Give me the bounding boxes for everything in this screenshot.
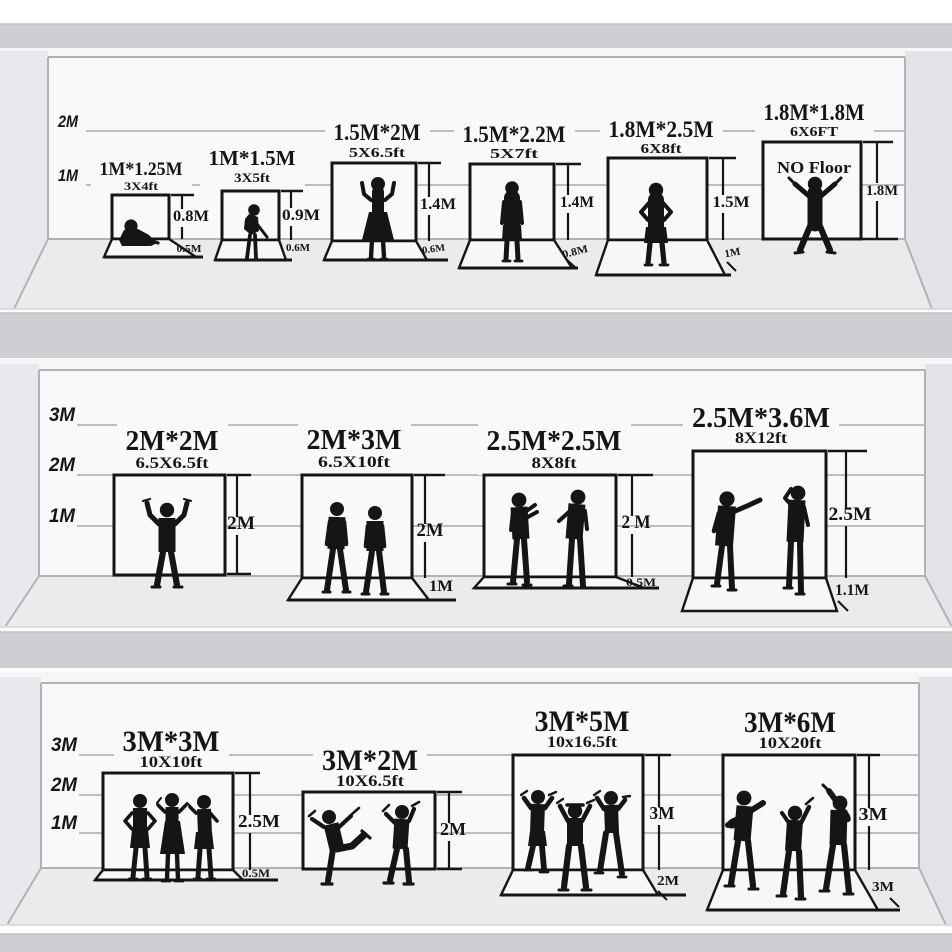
svg-text:3M: 3M (859, 804, 888, 824)
svg-text:1M: 1M (49, 506, 76, 527)
svg-text:6.5X6.5ft: 6.5X6.5ft (136, 455, 210, 472)
svg-text:1.5M*2M: 1.5M*2M (334, 120, 421, 145)
svg-text:3X5ft: 3X5ft (234, 170, 271, 185)
svg-text:1M: 1M (429, 578, 453, 595)
svg-text:1M*1.25M: 1M*1.25M (100, 159, 183, 180)
svg-text:2M*2M: 2M*2M (126, 425, 219, 457)
svg-text:1.4M: 1.4M (560, 194, 594, 211)
svg-text:0.8M: 0.8M (173, 208, 209, 225)
svg-text:10X10ft: 10X10ft (140, 754, 204, 771)
svg-text:1.4M: 1.4M (420, 196, 456, 213)
svg-text:2 M: 2 M (622, 512, 651, 533)
svg-text:2M*3M: 2M*3M (307, 424, 402, 456)
svg-text:8X12ft: 8X12ft (735, 430, 788, 447)
svg-text:2M: 2M (227, 513, 255, 534)
svg-text:5X6.5ft: 5X6.5ft (349, 146, 405, 161)
svg-text:10X20ft: 10X20ft (759, 735, 823, 752)
svg-text:2M: 2M (48, 455, 76, 476)
svg-text:0.5M: 0.5M (242, 866, 270, 880)
svg-text:2M: 2M (440, 819, 466, 839)
svg-text:6.5X10ft: 6.5X10ft (318, 454, 391, 471)
svg-text:10x16.5ft: 10x16.5ft (547, 734, 618, 751)
svg-text:1.8M*2.5M: 1.8M*2.5M (609, 117, 714, 142)
svg-text:3M: 3M (49, 405, 76, 426)
svg-text:1.1M: 1.1M (835, 582, 869, 599)
svg-text:3X4ft: 3X4ft (124, 179, 158, 193)
svg-text:0.5M: 0.5M (626, 575, 656, 589)
svg-text:2.5M: 2.5M (238, 811, 280, 831)
svg-text:2M: 2M (50, 775, 78, 796)
svg-text:5X7ft: 5X7ft (490, 147, 538, 162)
svg-text:2.5M: 2.5M (829, 504, 872, 525)
svg-text:8X8ft: 8X8ft (532, 455, 578, 472)
svg-text:0.5M: 0.5M (177, 244, 203, 255)
svg-text:2M: 2M (657, 874, 679, 889)
svg-text:3M: 3M (650, 803, 675, 823)
svg-text:10X6.5ft: 10X6.5ft (336, 773, 405, 790)
svg-text:2M: 2M (417, 520, 444, 541)
svg-text:1.8M*1.8M: 1.8M*1.8M (764, 100, 865, 125)
svg-text:NO Floor: NO Floor (777, 158, 851, 177)
svg-text:2M: 2M (57, 112, 79, 131)
svg-text:1.5M: 1.5M (713, 194, 750, 211)
svg-text:6X8ft: 6X8ft (641, 142, 682, 157)
svg-text:6X6FT: 6X6FT (790, 125, 839, 140)
svg-text:1M*1.5M: 1M*1.5M (209, 146, 296, 170)
svg-text:1.5M*2.2M: 1.5M*2.2M (463, 122, 566, 147)
svg-text:1M: 1M (58, 166, 79, 185)
svg-text:3M: 3M (872, 880, 894, 895)
svg-text:1M: 1M (51, 813, 78, 834)
svg-text:0.9M: 0.9M (282, 207, 320, 224)
svg-text:2.5M*2.5M: 2.5M*2.5M (487, 425, 622, 457)
svg-text:1.8M: 1.8M (866, 183, 898, 199)
svg-text:3M: 3M (51, 735, 78, 756)
svg-text:0.6M: 0.6M (286, 243, 311, 254)
